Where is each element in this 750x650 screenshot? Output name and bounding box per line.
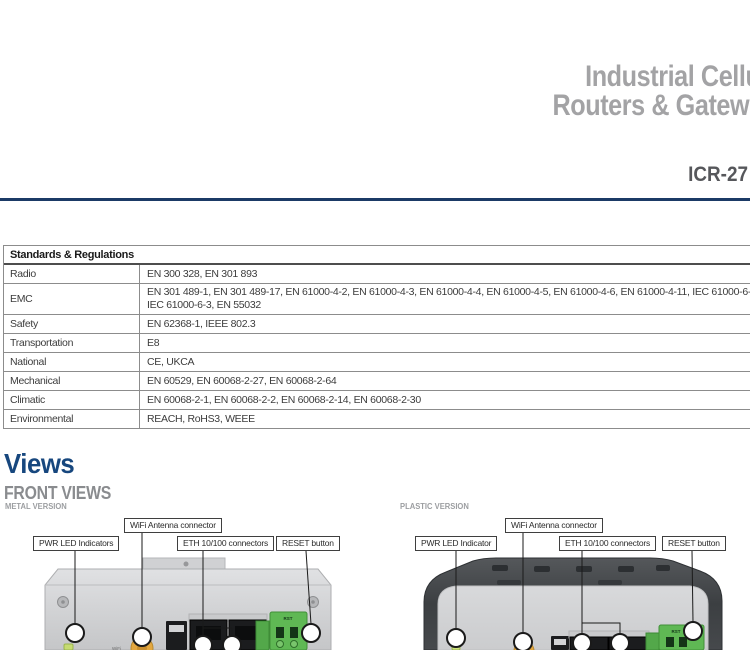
table-row-climatic: Climatic EN 60068-2-1, EN 60068-2-2, EN … (4, 391, 750, 410)
usb-port (166, 621, 187, 650)
datasheet-page: Industrial Cellular Routers & Gateways I… (0, 0, 750, 650)
row-value: EN 60529, EN 60068-2-27, EN 60068-2-64 (140, 372, 750, 390)
model-code: ICR-27 (435, 163, 748, 187)
row-label: Transportation (4, 334, 140, 352)
callout-pwr-led-metal: PWR LED Indicators (33, 536, 119, 551)
callout-wifi-antenna-metal: WiFi Antenna connector (124, 518, 222, 533)
document-title-line1: Industrial Cellular (462, 62, 750, 91)
callout-eth-connectors-metal: ETH 10/100 connectors (177, 536, 274, 551)
callout-pwr-led-plastic: PWR LED Indicator (415, 536, 497, 551)
document-title-line2: Routers & Gateways (462, 91, 750, 120)
subsection-title-front-views: FRONT VIEWS (4, 483, 111, 504)
standards-regulations-table: Standards & Regulations Radio EN 300 328… (3, 245, 750, 429)
callout-eth-connectors-plastic: ETH 10/100 connectors (559, 536, 656, 551)
callout-reset-button-plastic: RESET button (662, 536, 726, 551)
row-label: Environmental (4, 410, 140, 428)
table-row-radio: Radio EN 300 328, EN 301 893 (4, 265, 750, 284)
eth1-callout-circle (573, 634, 591, 650)
row-value: REACH, RoHS3, WEEE (140, 410, 750, 428)
row-label: Radio (4, 265, 140, 283)
table-row-transportation: Transportation E8 (4, 334, 750, 353)
table-row-mechanical: Mechanical EN 60529, EN 60068-2-27, EN 6… (4, 372, 750, 391)
document-title: Industrial Cellular Routers & Gateways (462, 62, 750, 120)
reset-callout-circle (684, 622, 702, 640)
table-row-emc: EMC EN 301 489-1, EN 301 489-17, EN 6100… (4, 284, 750, 315)
wifi-port-label: WiFi (112, 646, 121, 650)
screw-left (58, 597, 69, 608)
row-value: EN 301 489-1, EN 301 489-17, EN 61000-4-… (140, 284, 750, 314)
table-header: Standards & Regulations (4, 246, 750, 265)
header-divider-rule (0, 198, 750, 201)
row-label: EMC (4, 284, 140, 314)
row-label: National (4, 353, 140, 371)
eth1-callout-circle (194, 636, 212, 650)
wifi-callout-circle (514, 633, 532, 650)
reset-callout-circle (302, 624, 320, 642)
row-value: E8 (140, 334, 750, 352)
table-row-environmental: Environmental REACH, RoHS3, WEEE (4, 410, 750, 429)
tab-hole (184, 562, 189, 567)
row-value: EN 60068-2-1, EN 60068-2-2, EN 60068-2-1… (140, 391, 750, 409)
usb-port (551, 636, 569, 650)
pwr-led (64, 644, 73, 650)
rst-port-label: RST (672, 629, 681, 634)
pwr-led-callout-circle (66, 624, 84, 642)
callout-wifi-antenna-plastic: WiFi Antenna connector (505, 518, 603, 533)
table-row-national: National CE, UKCA (4, 353, 750, 372)
row-label: Climatic (4, 391, 140, 409)
section-title-views: Views (4, 448, 74, 480)
row-label: Safety (4, 315, 140, 333)
row-value: CE, UKCA (140, 353, 750, 371)
row-label: Mechanical (4, 372, 140, 390)
eth2-callout-circle (223, 636, 241, 650)
pwr-led-callout-circle (447, 629, 465, 647)
row-value: EN 300 328, EN 301 893 (140, 265, 750, 283)
row-value: EN 62368-1, IEEE 802.3 (140, 315, 750, 333)
table-row-safety: Safety EN 62368-1, IEEE 802.3 (4, 315, 750, 334)
eth2-callout-circle (611, 634, 629, 650)
front-views-diagram: WiFi RST (0, 510, 750, 650)
rst-port-label: RST (284, 616, 293, 621)
wifi-callout-circle (133, 628, 151, 646)
callout-reset-button-metal: RESET button (276, 536, 340, 551)
